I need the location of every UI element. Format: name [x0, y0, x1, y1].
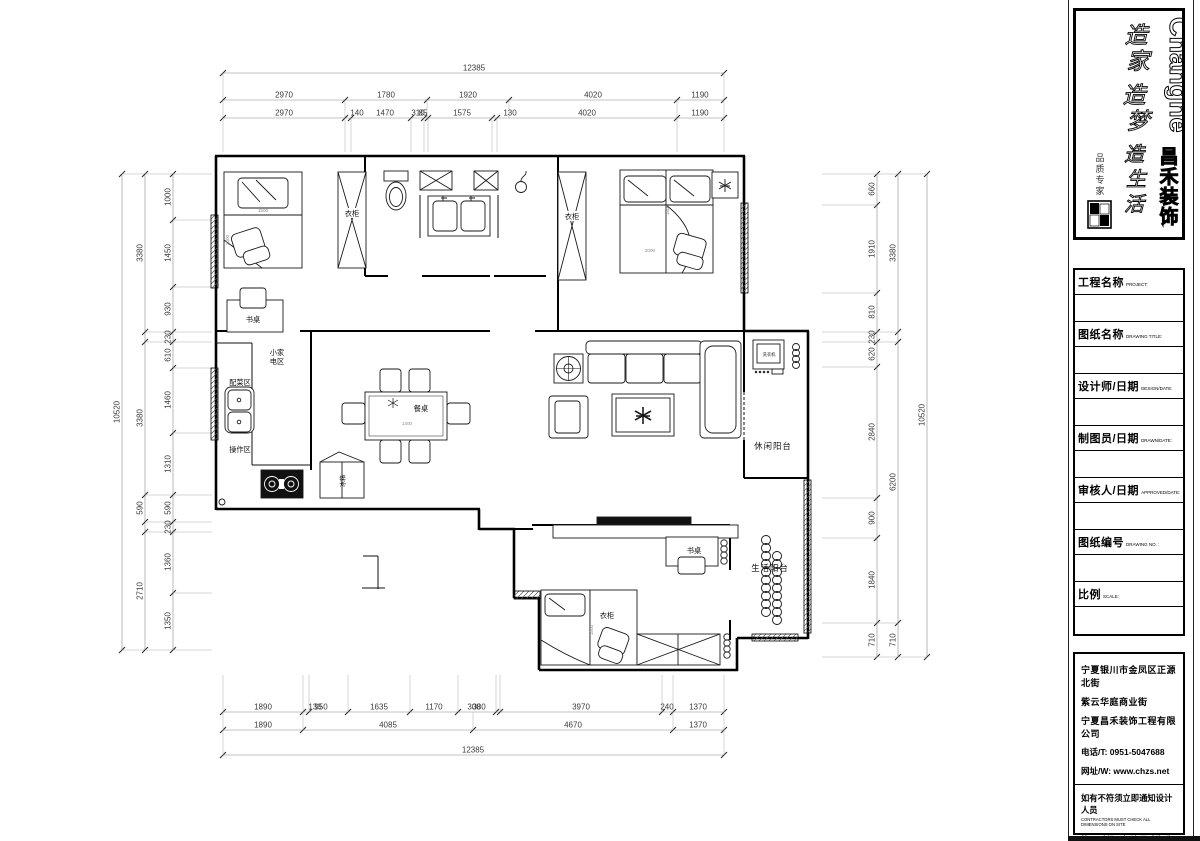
- title-column: Changhe 昌禾 装饰 造家 造梦 造 生 活 品质 专家: [1068, 0, 1197, 841]
- window-icon: [211, 368, 218, 440]
- titleblock-value-cell: [1075, 607, 1183, 634]
- dimension-label: 2840: [868, 423, 877, 441]
- logo-box: Changhe 昌禾 装饰 造家 造梦 造 生 活 品质 专家: [1073, 8, 1185, 240]
- dimension-label: 1190: [691, 91, 709, 100]
- bed3-size: 1500: [589, 624, 594, 635]
- svg-text:品: 品: [1095, 153, 1104, 163]
- pillow-icon: [624, 176, 666, 202]
- window-icon: [514, 591, 540, 599]
- dimension-label: 1310: [164, 455, 173, 473]
- svg-text:饰: 饰: [1159, 205, 1178, 228]
- window-icon: [804, 480, 811, 633]
- company-phone: 电话/T: 0951-5047688: [1081, 746, 1177, 758]
- svg-text:专: 专: [1095, 174, 1104, 185]
- pillow-icon: [670, 176, 710, 202]
- dimension-label: 230: [868, 330, 877, 344]
- window-icon: [741, 203, 748, 293]
- desk2-label: 书桌: [687, 546, 701, 555]
- dimension-label: 1840: [868, 571, 877, 589]
- fridge-label: 冰箱: [339, 475, 347, 487]
- floorplan-sheet: 1238529701780192040201190297014014703108…: [0, 0, 1200, 841]
- dimension-label: 3970: [572, 703, 590, 712]
- dimension-label: 1780: [377, 91, 395, 100]
- dimension-label: 4085: [379, 721, 397, 730]
- dimension-label: 12385: [462, 746, 485, 755]
- svg-text:造: 造: [1125, 22, 1150, 48]
- dimension-label: 1360: [164, 553, 173, 571]
- titleblock-row-designer: 设计师/日期 DESIGN/DATE:: [1075, 374, 1183, 399]
- titleblock-row-drawing-no: 图纸编号 DRAWING NO. :: [1075, 530, 1183, 555]
- toilet-icon: [384, 171, 408, 181]
- floorplan-drawing: 1238529701780192040201190297014014703108…: [0, 0, 1068, 841]
- svg-text:禾: 禾: [1159, 166, 1178, 188]
- wardrobe3-label: 衣柜: [600, 611, 614, 620]
- svg-text:质: 质: [1095, 163, 1104, 174]
- dimension-label: 240: [660, 703, 674, 712]
- logo-art: Changhe 昌禾 装饰 造家 造梦 造 生 活 品质 专家: [1076, 11, 1182, 237]
- bedroom-2: [558, 170, 738, 280]
- dimension-label: 660: [868, 182, 877, 196]
- dimension-label: 1370: [689, 721, 707, 730]
- dimension-label: 230: [164, 330, 173, 344]
- titleblock-table: 工程名称 PROJECT: 图纸名称 DRAWING TITLE: 设计师/日期…: [1073, 268, 1185, 636]
- dimension-label: 3380: [136, 409, 145, 427]
- svg-text:活: 活: [1124, 194, 1147, 216]
- titleblock-value-cell: [1075, 451, 1183, 478]
- titleblock-value-cell: [1075, 399, 1183, 426]
- dimension-label: 1460: [164, 391, 173, 409]
- kitchen-work-label: 操作区: [229, 445, 251, 454]
- bed2-width: 1800: [665, 204, 670, 215]
- pillow-icon: [238, 178, 288, 208]
- notice1-cn: 如有不符须立即通知设计人员: [1081, 792, 1177, 816]
- dining-size: 1400: [402, 421, 413, 426]
- dimension-label: 4020: [584, 91, 602, 100]
- signature-calligraphy: 品质 专家: [1095, 153, 1104, 196]
- chair-icon: [342, 403, 365, 424]
- svg-text:家: 家: [1095, 185, 1104, 196]
- dimension-label: 710: [889, 633, 898, 647]
- dimension-label: 590: [136, 501, 145, 515]
- dimension-label: 590: [164, 501, 173, 515]
- chair-icon: [447, 403, 470, 424]
- window-icon: [211, 215, 218, 288]
- chair-icon: [678, 557, 705, 574]
- kitchen-prep-label: 配菜区: [229, 378, 251, 387]
- dimension-label: 6200: [889, 473, 898, 491]
- bed1-size: 1500: [258, 208, 269, 213]
- radiator-coil-icon: [762, 536, 782, 625]
- titleblock-value-cell: [1075, 503, 1183, 530]
- dimension-label: 230: [164, 520, 173, 534]
- dimension-label: 1890: [254, 721, 272, 730]
- dimension-label: 140: [350, 109, 364, 118]
- chair-icon: [409, 369, 430, 392]
- company-address-1: 宁夏银川市金凤区正源北街: [1081, 663, 1177, 689]
- dimension-label: 1190: [691, 109, 709, 118]
- dimension-label: 4670: [564, 721, 582, 730]
- titleblock-value-cell: [1075, 347, 1183, 374]
- dimension-label: 10520: [918, 403, 927, 426]
- dimension-label: 1575: [453, 109, 471, 118]
- dimension-label: 1635: [370, 703, 388, 712]
- dimension-label: 10520: [113, 400, 122, 423]
- titleblock-row-project: 工程名称 PROJECT:: [1075, 270, 1183, 295]
- svg-text:家: 家: [1127, 48, 1153, 74]
- wardrobe1-label: 衣柜: [345, 209, 359, 218]
- dimension-label: 710: [868, 633, 877, 647]
- dimension-label: 3380: [136, 244, 145, 262]
- chair-icon: [240, 288, 266, 308]
- dimension-label: 1350: [164, 612, 173, 630]
- svg-text:造: 造: [1123, 82, 1148, 108]
- dimension-label: 810: [868, 305, 877, 319]
- titleblock-row-drafter: 制图员/日期 DRAWN/DATE:: [1075, 426, 1183, 451]
- chair-icon: [380, 440, 401, 463]
- tv-shelf-icon: [553, 525, 738, 538]
- dimension-label: 1470: [376, 109, 394, 118]
- bedroom-1: [224, 172, 366, 332]
- washer-label: 洗衣机: [763, 351, 777, 358]
- dining-table-icon: [365, 392, 447, 440]
- wardrobe2-label: 衣柜: [565, 212, 579, 221]
- chair-icon: [380, 369, 401, 392]
- bed1-length: 2000: [225, 234, 230, 245]
- svg-text:昌: 昌: [1159, 146, 1178, 168]
- dining-area: [342, 369, 470, 463]
- pillow-icon: [545, 594, 585, 616]
- divider: [1075, 784, 1183, 785]
- tv-icon: [597, 517, 691, 524]
- dimension-label: 1170: [425, 703, 443, 712]
- dimension-label: 4020: [578, 109, 596, 118]
- sink-icon: [461, 201, 485, 231]
- dimension-label: 1370: [689, 703, 707, 712]
- sofa-icon: [586, 341, 702, 354]
- dimension-label: 610: [164, 348, 173, 362]
- dimension-label: 2710: [136, 582, 145, 600]
- dimension-label: 1450: [164, 244, 173, 262]
- dimension-label: 85: [419, 109, 428, 118]
- svg-text:装: 装: [1158, 185, 1178, 208]
- company-name: 宁夏昌禾装饰工程有限公司: [1081, 714, 1177, 740]
- dimension-label: 900: [868, 511, 877, 525]
- svg-text:造: 造: [1124, 144, 1146, 166]
- slogan-calligraphy: 造家 造梦 造 生 活: [1123, 22, 1154, 216]
- dimension-label: 2970: [275, 91, 293, 100]
- dimension-label: 1920: [459, 91, 477, 100]
- dimension-label: 1000: [164, 188, 173, 206]
- seal-stamp-icon: [1088, 201, 1111, 228]
- sink-icon: [433, 201, 457, 231]
- dimension-label: 1910: [868, 240, 877, 258]
- dimension-label: 12385: [463, 64, 486, 73]
- dimension-label: 950: [314, 703, 328, 712]
- balcony-leisure-label: 休闲阳台: [754, 441, 792, 451]
- brand-chinese: 昌禾 装饰: [1158, 146, 1178, 228]
- shower-lamp-icon: [516, 182, 527, 193]
- chair-icon: [409, 440, 430, 463]
- dimension-label: 620: [868, 347, 877, 361]
- kitchen-zone-label: 小家: [270, 348, 284, 357]
- notice1-en: CONTRACTORS MUST CHECK ALL DIMENSIONS ON…: [1081, 817, 1177, 827]
- titleblock-value-cell: [1075, 555, 1183, 582]
- bed2-length: 2000: [645, 248, 656, 253]
- dimension-label: 380: [472, 703, 486, 712]
- company-address-2: 紫云华庭商业街: [1081, 695, 1177, 708]
- svg-text:生: 生: [1126, 169, 1148, 191]
- kitchen-zone-label: 电区: [270, 357, 284, 366]
- dimension-label: 1890: [254, 703, 272, 712]
- window-icon: [752, 634, 798, 641]
- titleblock-row-drawing-title: 图纸名称 DRAWING TITLE:: [1075, 322, 1183, 347]
- dimension-label: 2970: [275, 109, 293, 118]
- dimension-label: 3380: [889, 244, 898, 262]
- sheet-bottom-edge: [1068, 836, 1200, 841]
- dimension-label: 930: [164, 302, 173, 316]
- company-website: 网址/W: www.chzs.net: [1081, 765, 1177, 777]
- balcony-life-label: 生活阳台: [751, 563, 789, 573]
- dimension-label: 130: [503, 109, 517, 118]
- bedroom-3: [541, 517, 738, 665]
- desk1-label: 书桌: [246, 315, 260, 324]
- brand-english: Changhe: [1164, 17, 1182, 133]
- titleblock-row-approver: 审核人/日期 APPROVED/DATE:: [1075, 478, 1183, 503]
- dining-table-label: 餐桌: [414, 404, 428, 413]
- titleblock-row-scale: 比例 SCALE:: [1075, 582, 1183, 607]
- company-block: 宁夏银川市金凤区正源北街 紫云华庭商业街 宁夏昌禾装饰工程有限公司 电话/T: …: [1073, 652, 1185, 835]
- bathroom: [384, 171, 527, 236]
- radiator-icon: [721, 540, 727, 546]
- titleblock-value-cell: [1075, 295, 1183, 322]
- svg-text:梦: 梦: [1127, 108, 1154, 134]
